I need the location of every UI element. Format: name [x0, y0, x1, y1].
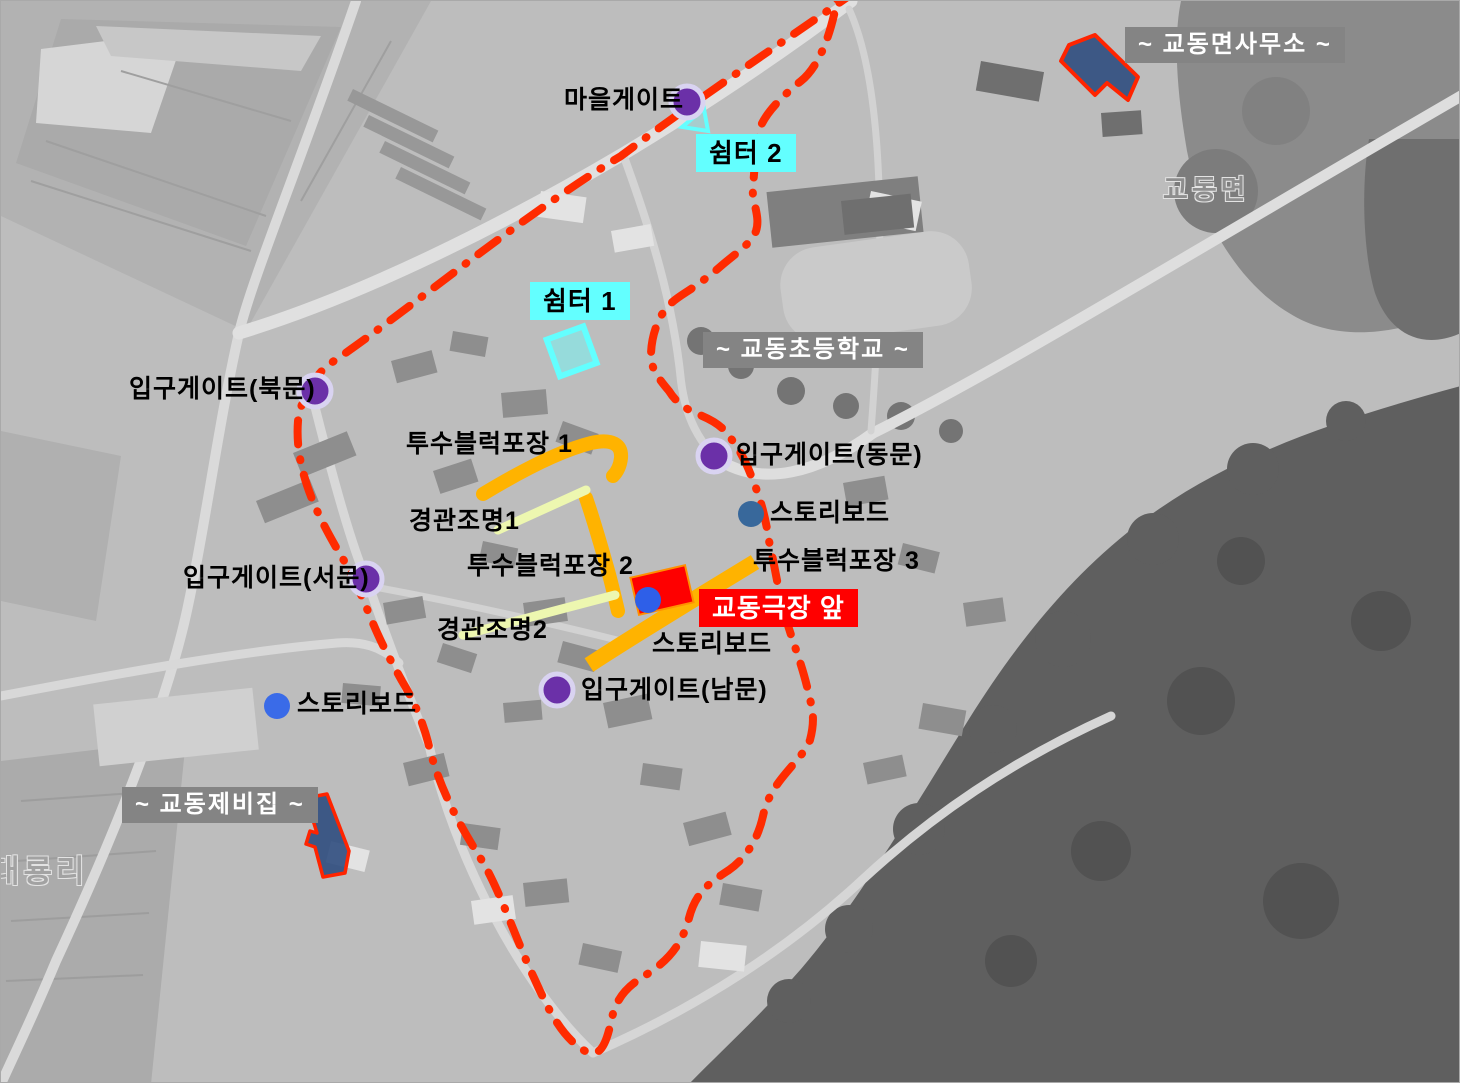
storyboard-center-label: 스토리보드	[652, 632, 772, 657]
satellite-map: 대룡리 교동면 마을게이트 입구게이트(북문) 입구게이트(동문) 입구게이트(…	[0, 0, 1460, 1083]
west-gate-label: 입구게이트(서문)	[183, 566, 370, 591]
base-village-name: 대룡리	[0, 856, 89, 887]
base-town-name: 교동면	[1163, 177, 1250, 204]
village-gate-label: 마을게이트	[564, 88, 684, 113]
myeon-office-label: ~ 교동면사무소 ~	[1125, 27, 1345, 63]
pavement-2-label: 투수블럭포장 2	[467, 554, 634, 579]
lighting-1-label: 경관조명1	[409, 509, 520, 534]
farm-fields	[1, 1, 431, 1083]
pavement-1-label: 투수블럭포장 1	[406, 432, 573, 457]
east-gate-label: 입구게이트(동문)	[736, 443, 923, 468]
storyboard-east-dot	[738, 501, 764, 527]
storyboard-west-dot	[264, 693, 290, 719]
south-gate-label: 입구게이트(남문)	[581, 678, 768, 703]
shelter-1-label: 쉼터 1	[530, 282, 630, 320]
jebi-house-label: ~ 교동제비집 ~	[122, 787, 318, 823]
storyboard-west-label: 스토리보드	[297, 692, 417, 717]
north-gate-label: 입구게이트(북문)	[129, 377, 316, 402]
theater-front-label: 교동극장 앞	[699, 589, 858, 627]
lighting-2-label: 경관조명2	[437, 618, 548, 643]
shelter-2-label: 쉼터 2	[696, 134, 796, 172]
elementary-school-label: ~ 교동초등학교 ~	[703, 332, 923, 368]
storyboard-east-label: 스토리보드	[770, 501, 890, 526]
south-gate-dot	[539, 672, 576, 709]
shelter-1-site	[547, 326, 597, 376]
pavement-3-label: 투수블럭포장 3	[753, 549, 920, 574]
east-gate-dot	[696, 438, 733, 475]
storyboard-center-dot	[635, 587, 661, 613]
